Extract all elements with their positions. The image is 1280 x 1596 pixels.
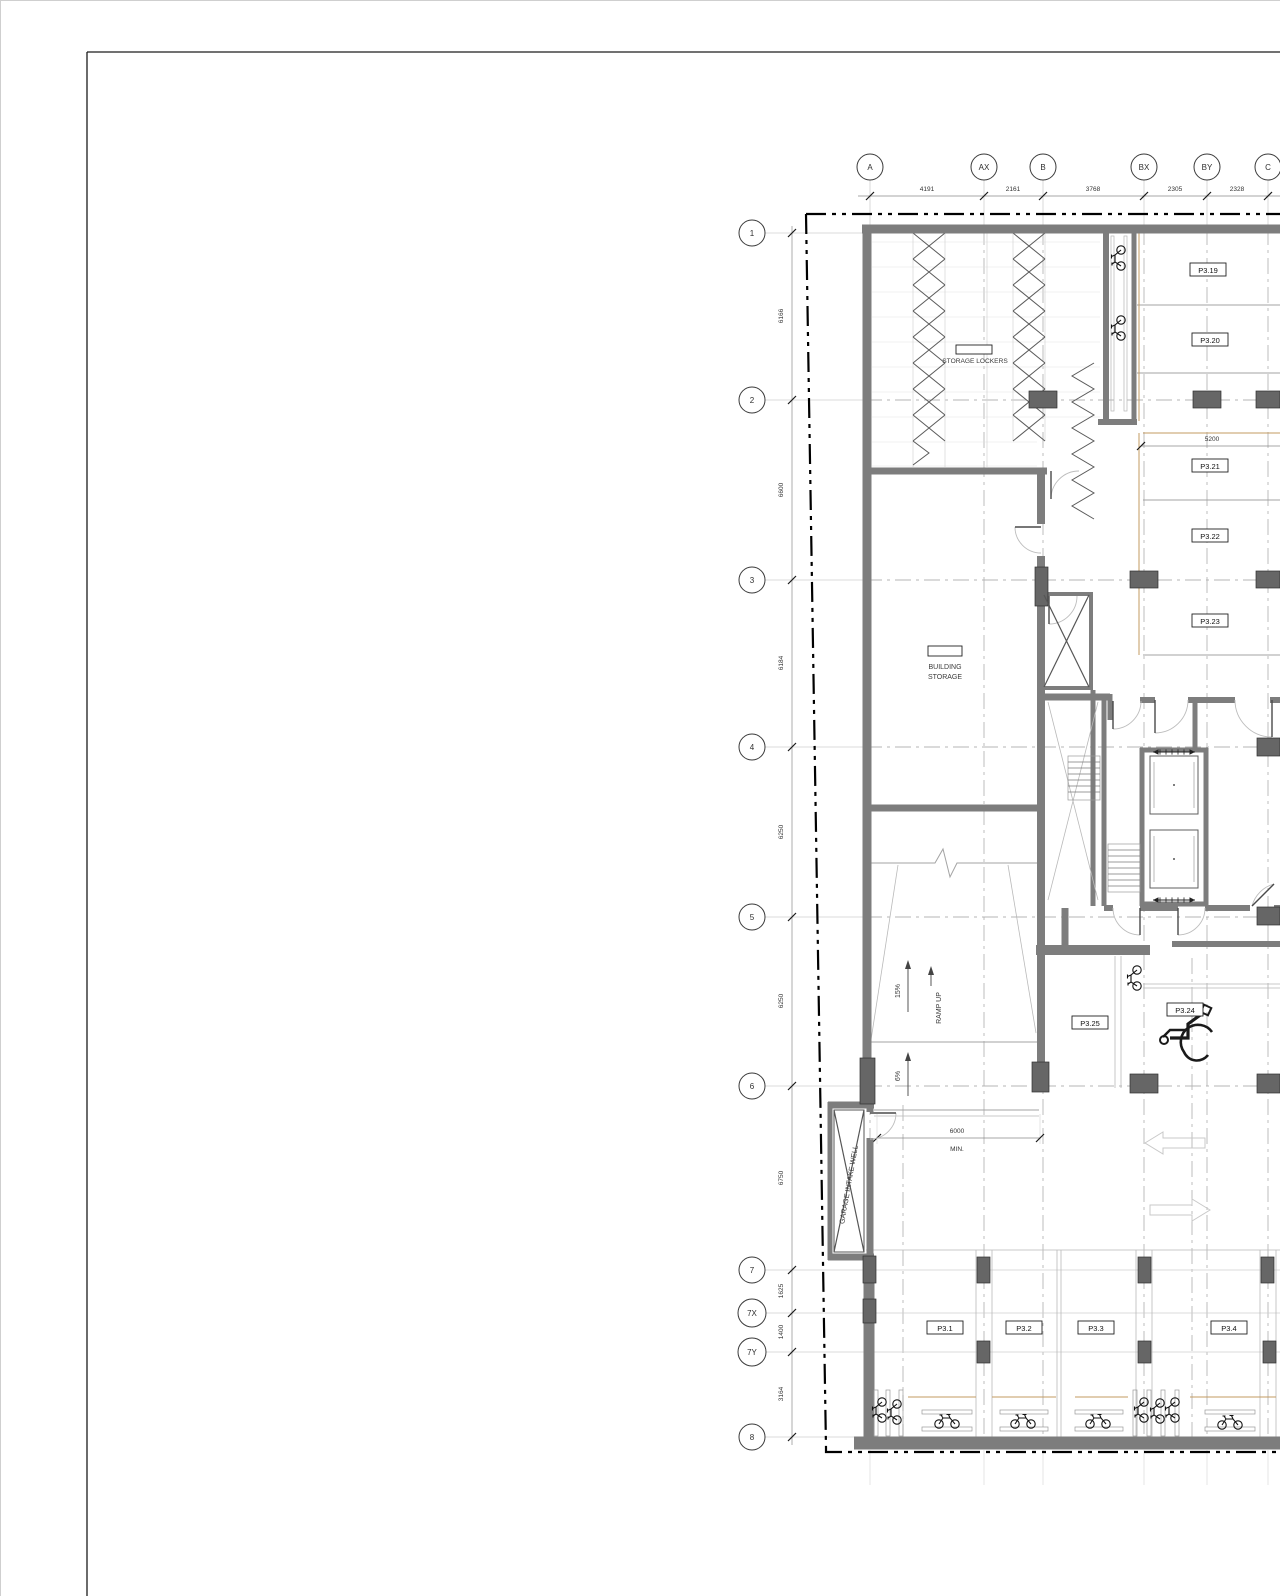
dim-7-7x: 1625 — [778, 1283, 785, 1298]
grid-bubble-7: 7 — [750, 1266, 755, 1275]
svg-text:P3.23: P3.23 — [1200, 617, 1220, 626]
floor-plan-canvas: 4191 2161 3768 2305 2328 6166 6600 6184 … — [0, 0, 1280, 1596]
ramp-up-arrow-icon — [905, 960, 934, 1096]
ramp-width-value: 6000 — [950, 1128, 965, 1135]
dim-b-bx: 3768 — [1086, 186, 1101, 193]
grid-bubble-b: B — [1040, 163, 1045, 172]
stall-depth-dimension: 5200 — [1137, 436, 1280, 450]
bike-storage-top — [1111, 236, 1127, 411]
stall-tag-p325: P3.25 — [1072, 1016, 1108, 1029]
top-grid-bubbles: A AX B BX BY C — [857, 154, 1280, 180]
building-storage-tag-box — [928, 646, 962, 656]
walls — [828, 225, 1280, 1449]
bike-rack-center — [1128, 966, 1142, 990]
dim-1-2: 6166 — [778, 308, 785, 323]
arrow-right-icon — [1150, 1199, 1210, 1221]
stall-tag-p320: P3.20 — [1192, 333, 1228, 346]
ramp-lower-slope: 6% — [895, 1071, 902, 1081]
svg-text:P3.25: P3.25 — [1080, 1019, 1100, 1028]
dim-6-7: 6750 — [778, 1170, 785, 1185]
dim-4-5: 6250 — [778, 824, 785, 839]
grid-bubble-2: 2 — [750, 396, 755, 405]
building-storage-room: BUILDING STORAGE — [928, 646, 962, 681]
stall-labels: P3.19 P3.20 P3.21 P3.22 P3.23 P3.24 P3.2… — [927, 263, 1247, 1334]
storage-lockers-room: STORAGE LOCKERS — [872, 233, 1100, 519]
dim-bx-by: 2305 — [1168, 186, 1183, 193]
svg-text:P3.19: P3.19 — [1198, 266, 1218, 275]
svg-text:P3.24: P3.24 — [1175, 1006, 1195, 1015]
ramp-upper-slope: 15% — [895, 984, 902, 998]
svg-text:P3.22: P3.22 — [1200, 532, 1220, 541]
ramp-width-dimension: 6000 MIN. — [873, 1114, 1044, 1153]
svg-text:P3.2: P3.2 — [1016, 1324, 1031, 1333]
dim-7y-8: 3164 — [778, 1386, 785, 1401]
svg-text:P3.4: P3.4 — [1221, 1324, 1236, 1333]
drawing-sheet: 4191 2161 3768 2305 2328 6166 6600 6184 … — [0, 0, 1280, 1596]
grid-bubble-7x: 7X — [747, 1309, 757, 1318]
building-storage-label-1: BUILDING — [928, 664, 961, 671]
grid-bubble-6: 6 — [750, 1082, 755, 1091]
building-storage-label-2: STORAGE — [928, 674, 962, 681]
grid-bubble-7y: 7Y — [747, 1348, 757, 1357]
stall-tag-p322: P3.22 — [1192, 529, 1228, 542]
grid-bubble-8: 8 — [750, 1433, 755, 1442]
stall-tag-p34: P3.4 — [1211, 1321, 1247, 1334]
svg-text:P3.1: P3.1 — [937, 1324, 952, 1333]
grid-bubble-ax: AX — [979, 163, 990, 172]
ramp-label: RAMP UP — [936, 992, 943, 1024]
storage-lockers-tag-box — [956, 345, 992, 354]
drive-aisle-arrows — [1145, 1132, 1210, 1221]
storage-lockers-label: STORAGE LOCKERS — [942, 358, 1008, 365]
vent-shaft — [1044, 595, 1089, 687]
dim-by-c: 2328 — [1230, 186, 1245, 193]
stall-tag-p33: P3.3 — [1078, 1321, 1114, 1334]
dim-a-ax: 4191 — [920, 186, 935, 193]
grid-bubble-5: 5 — [750, 913, 755, 922]
stall-tag-p321: P3.21 — [1192, 459, 1228, 472]
dim-5-6: 6250 — [778, 993, 785, 1008]
top-dimension-string: 4191 2161 3768 2305 2328 — [858, 186, 1280, 200]
grid-bubble-a: A — [867, 163, 873, 172]
grid-bubble-1: 1 — [750, 229, 755, 238]
grid-bubble-by: BY — [1202, 163, 1213, 172]
garage-intake-well: GARAGE INTAKE WELL — [834, 1110, 864, 1252]
svg-text:P3.20: P3.20 — [1200, 336, 1220, 345]
ramp-width-qualifier: MIN. — [950, 1146, 964, 1153]
column-grid: 4191 2161 3768 2305 2328 6166 6600 6184 … — [738, 154, 1280, 1485]
stall-depth-value: 5200 — [1205, 436, 1220, 443]
dim-2-3: 6600 — [778, 482, 785, 497]
svg-text:P3.21: P3.21 — [1200, 462, 1220, 471]
parking-stall-lines — [866, 229, 1280, 1440]
stall-tag-p31: P3.1 — [927, 1321, 963, 1334]
grid-bubble-c: C — [1265, 163, 1271, 172]
arrow-left-icon — [1145, 1132, 1205, 1154]
sheet-frame — [0, 0, 1280, 1596]
elevators — [1150, 749, 1198, 903]
dim-3-4: 6184 — [778, 655, 785, 670]
side-dimension-string: 6166 6600 6184 6250 6250 6750 1625 1400 … — [778, 226, 796, 1445]
grid-bubble-4: 4 — [750, 743, 755, 752]
stall-tag-p319: P3.19 — [1190, 263, 1226, 276]
stall-tag-p324: P3.24 — [1167, 1003, 1203, 1016]
locker-doors — [913, 233, 1094, 519]
stall-tag-p323: P3.23 — [1192, 614, 1228, 627]
stair-flight-lower — [1108, 844, 1140, 892]
dim-ax-b: 2161 — [1006, 186, 1021, 193]
dim-7x-7y: 1400 — [778, 1324, 785, 1339]
stall-tag-p32: P3.2 — [1006, 1321, 1042, 1334]
svg-text:P3.3: P3.3 — [1088, 1324, 1103, 1333]
grid-bubble-3: 3 — [750, 576, 755, 585]
grid-bubble-bx: BX — [1139, 163, 1150, 172]
ramp: 15% RAMP UP 6% 6000 MIN. — [868, 849, 1044, 1153]
